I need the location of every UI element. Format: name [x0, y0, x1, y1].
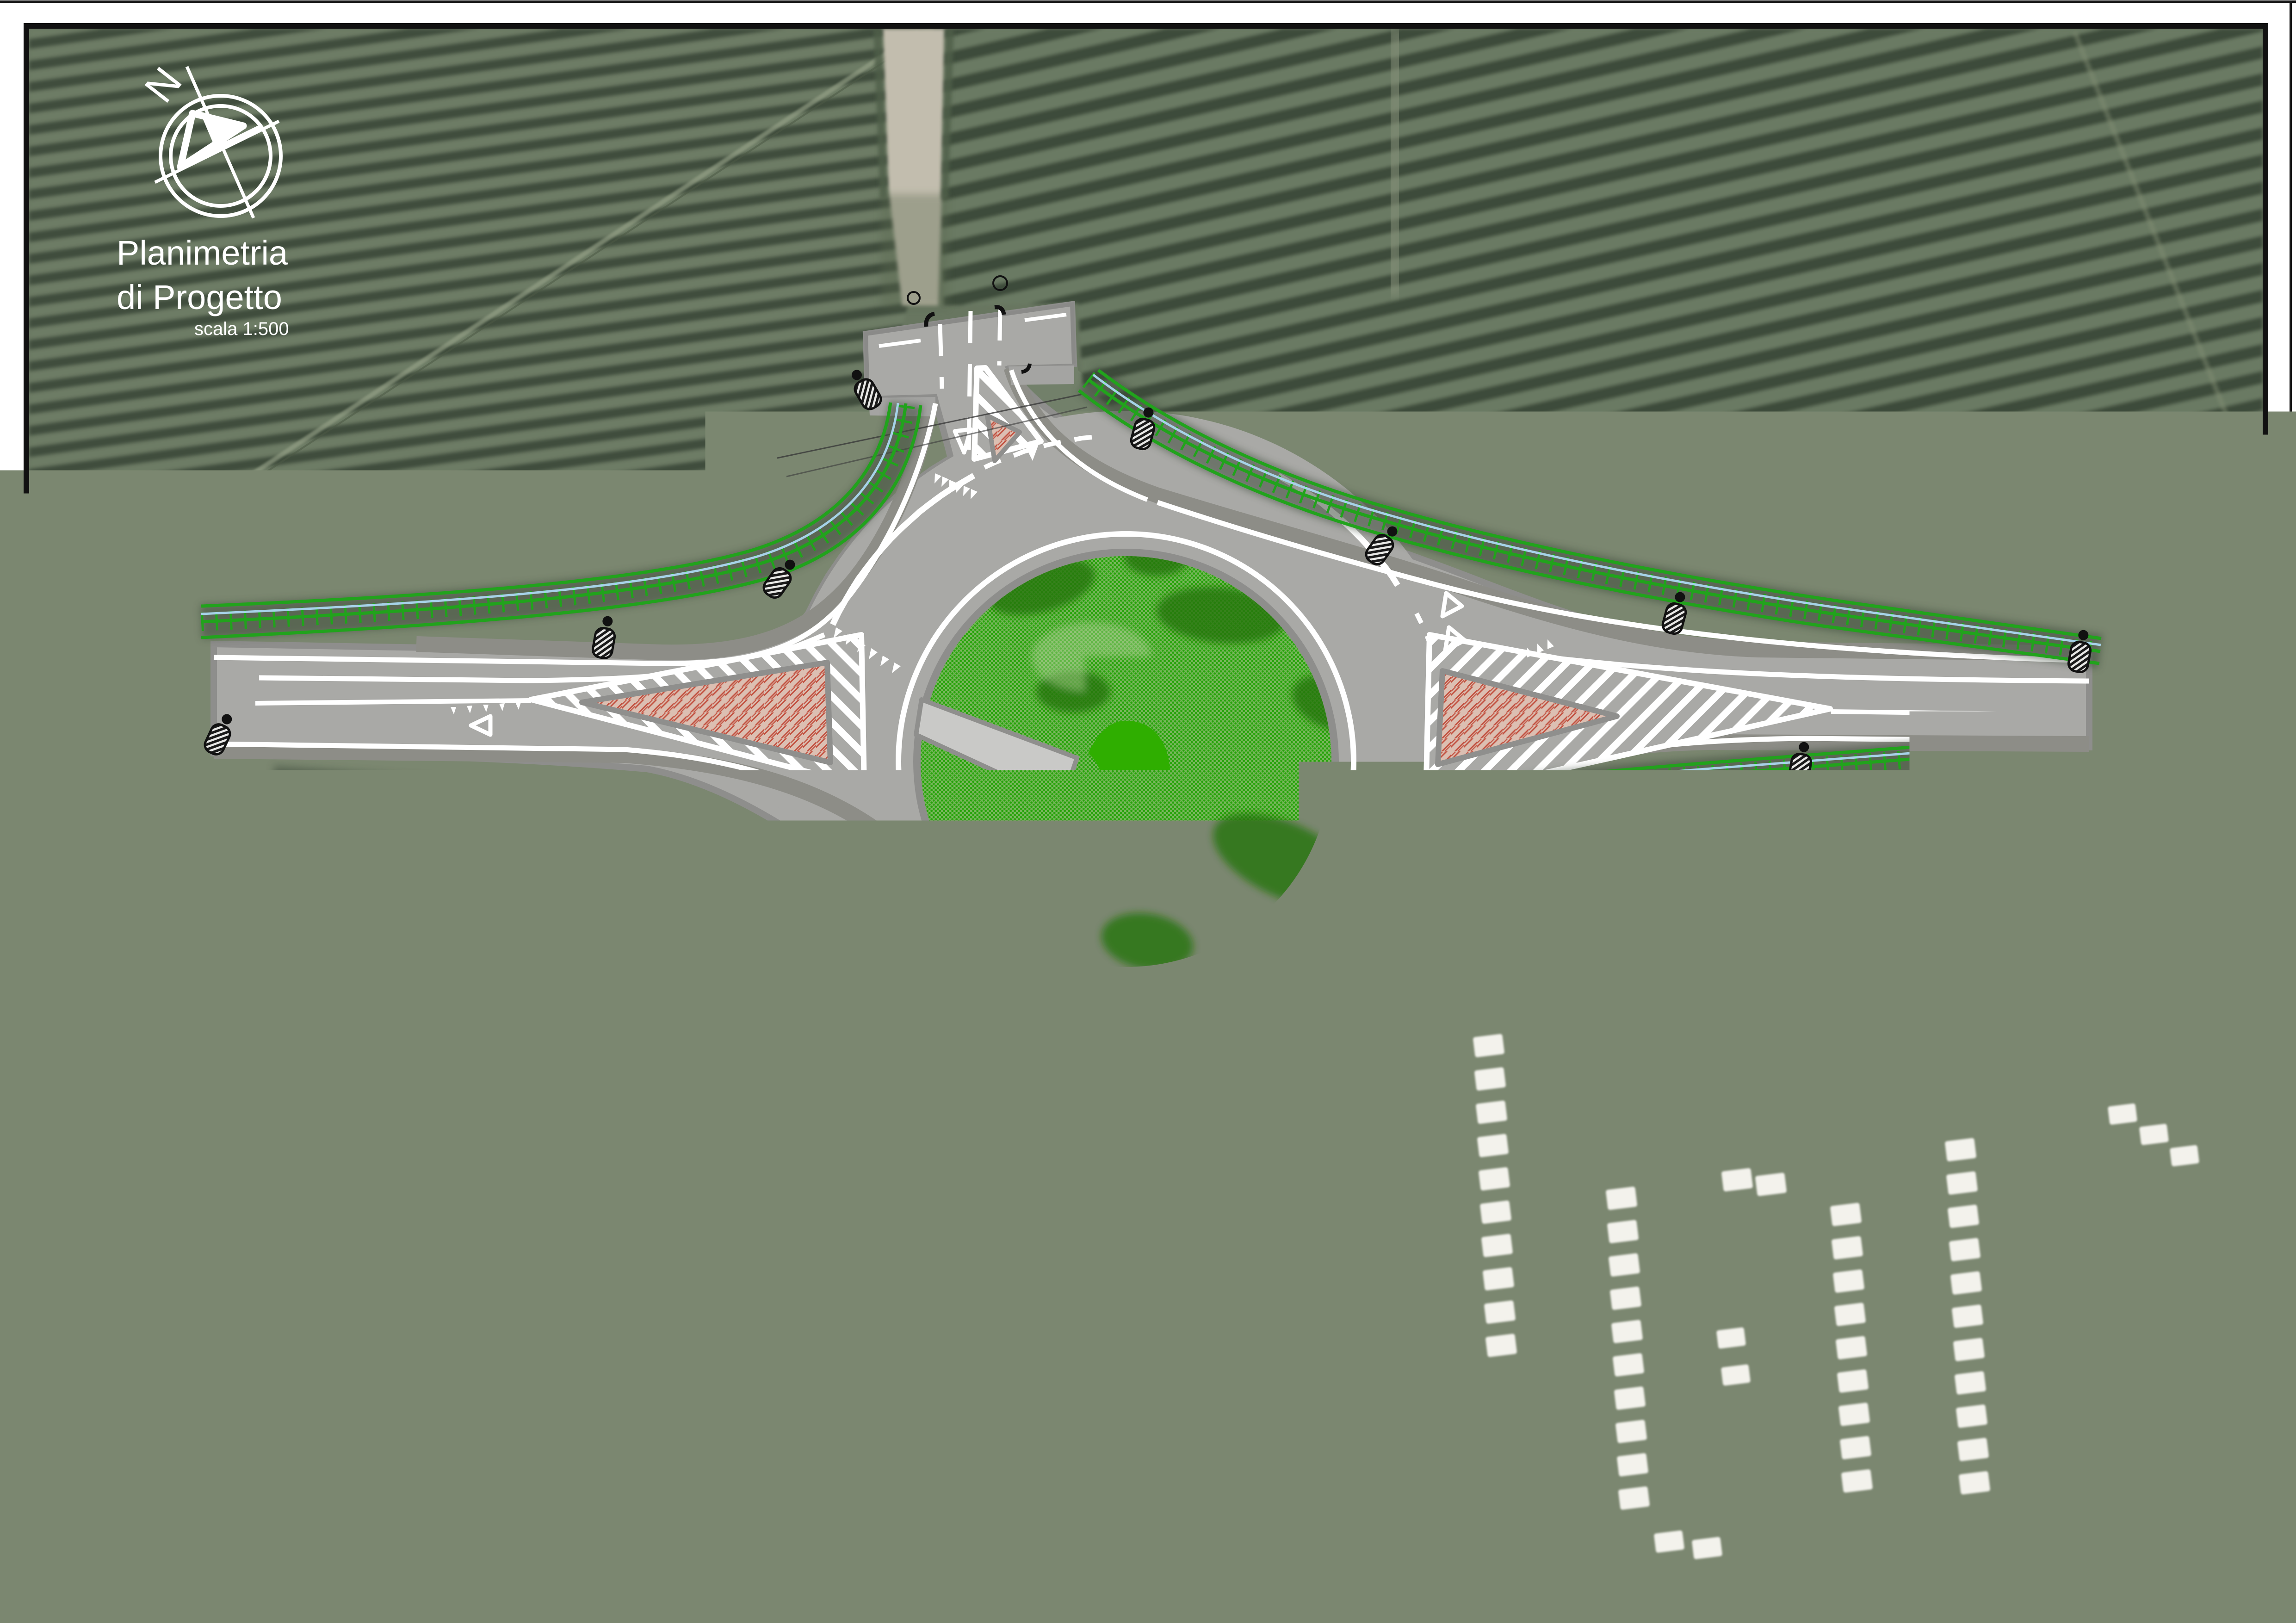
- svg-text:Planimetria: Planimetria: [117, 234, 288, 272]
- svg-text:di Progetto: di Progetto: [117, 278, 282, 316]
- svg-text:A3: A3: [30, 1320, 44, 1337]
- svg-text:Documento elaborato da Ingegne: Documento elaborato da Ingegneri Riuniti…: [31, 1372, 43, 1589]
- svg-text:scala 1:500: scala 1:500: [194, 319, 289, 339]
